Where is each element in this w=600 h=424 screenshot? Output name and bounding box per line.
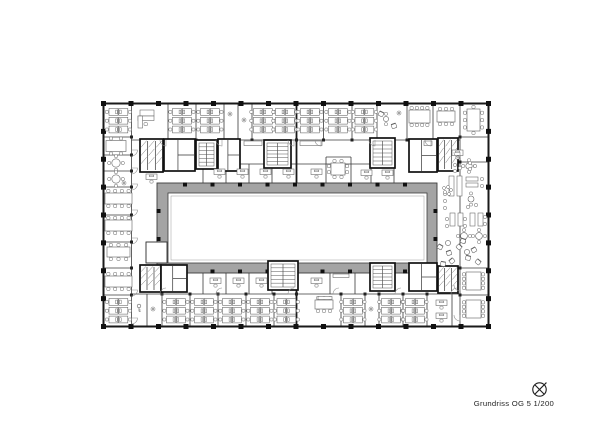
round-table — [472, 229, 487, 244]
lounge-chair — [437, 244, 443, 250]
meeting-table — [409, 107, 430, 127]
stool — [445, 224, 448, 227]
single-desk — [146, 174, 157, 183]
cabinet — [244, 141, 262, 146]
workstation-cluster — [340, 299, 366, 323]
stair-core — [268, 261, 298, 290]
lounge-counter — [466, 177, 478, 181]
lounge-chair — [449, 258, 456, 264]
lounge-chair — [378, 111, 384, 117]
lounge-chair — [471, 247, 477, 253]
lounge-counter — [458, 213, 463, 226]
wc-core — [140, 265, 161, 292]
service-core — [164, 139, 195, 171]
single-desk — [311, 278, 322, 287]
workstation-cluster — [105, 109, 131, 133]
wc-core — [438, 266, 458, 293]
stool — [445, 217, 448, 220]
lounge-counter — [457, 176, 462, 196]
lounge-chair — [456, 244, 463, 251]
round-table — [445, 240, 450, 245]
workstation-cluster — [197, 109, 223, 133]
plant-icon — [227, 111, 232, 116]
stool — [463, 217, 466, 220]
plant-icon — [368, 306, 373, 311]
lounge-chair — [460, 238, 466, 244]
lounge-counter — [478, 213, 483, 226]
single-desk — [256, 278, 267, 287]
service-core — [409, 139, 437, 172]
plant-icon — [150, 306, 155, 311]
stair-core — [196, 140, 217, 169]
meeting-table — [106, 137, 126, 155]
meeting-table — [105, 190, 132, 208]
lounge-chair — [465, 255, 471, 260]
plant-icon — [396, 110, 401, 115]
courtyard-atrium — [146, 183, 437, 273]
lounge-chair — [391, 123, 397, 129]
stair-core — [264, 140, 291, 168]
stool — [458, 166, 461, 169]
workstation-cluster — [219, 299, 245, 323]
lounge-chair — [475, 259, 482, 265]
round-table — [383, 112, 388, 125]
service-core — [409, 263, 437, 291]
workstation-cluster — [169, 109, 195, 133]
meeting-table — [105, 217, 132, 235]
single-desk — [237, 169, 248, 178]
workstation-cluster — [402, 299, 428, 323]
stool — [480, 184, 483, 187]
stair-core — [370, 138, 395, 168]
single-desk — [210, 278, 221, 287]
workstation-cluster — [273, 299, 299, 323]
stool — [466, 205, 469, 208]
meeting-table — [463, 106, 483, 135]
plant-icon — [121, 180, 126, 185]
stool — [473, 164, 476, 167]
wc-core — [140, 139, 163, 172]
single-desk — [311, 169, 322, 178]
stool — [483, 222, 486, 225]
single-desk — [361, 170, 372, 179]
door-swing — [132, 318, 138, 324]
stool — [468, 167, 471, 170]
workstation-cluster — [351, 109, 377, 133]
meeting-table — [327, 160, 348, 179]
stool — [468, 161, 471, 164]
round-table — [468, 192, 474, 206]
workstation-cluster — [272, 109, 298, 133]
cabinet — [318, 297, 332, 300]
lounge-chair — [446, 250, 452, 256]
key-icon — [137, 304, 141, 311]
plant-icon — [241, 117, 246, 122]
stool — [443, 199, 446, 202]
single-desk — [214, 169, 225, 178]
service-core — [218, 139, 240, 171]
workstation-cluster — [378, 299, 404, 323]
floor-plan-page: Grundriss OG 5 1/200 — [0, 0, 600, 424]
round-table — [464, 249, 469, 254]
single-desk — [382, 170, 393, 179]
stair-core — [370, 263, 395, 291]
lounge-chair — [440, 261, 445, 266]
workstation-cluster — [297, 109, 323, 133]
single-desk — [283, 169, 294, 178]
cabinet — [140, 110, 154, 116]
workstation-cluster — [191, 299, 217, 323]
stool — [463, 224, 466, 227]
workstation-cluster — [325, 109, 351, 133]
stool — [453, 163, 456, 166]
cabinet — [300, 141, 322, 146]
workstation-cluster — [163, 299, 189, 323]
lounge-counter — [466, 183, 478, 187]
meeting-table — [462, 300, 484, 318]
stool — [480, 177, 483, 180]
single-desk — [233, 278, 244, 287]
meeting-table — [462, 272, 484, 290]
single-desk — [436, 313, 447, 322]
lounge-counter — [450, 213, 455, 226]
meeting-table — [437, 108, 455, 126]
stool — [474, 203, 477, 206]
single-desk — [260, 169, 271, 178]
lounge-counter — [470, 213, 475, 226]
round-table — [108, 171, 125, 187]
cabinet — [333, 274, 349, 278]
l-desk — [138, 116, 154, 128]
stool — [443, 206, 446, 209]
workstation-cluster — [105, 299, 131, 323]
meeting-table — [105, 273, 132, 291]
floor-plan-drawing — [0, 0, 600, 424]
single-desk — [436, 300, 447, 309]
stool — [483, 215, 486, 218]
workstation-cluster — [247, 299, 273, 323]
door-swing — [454, 315, 460, 321]
round-table — [108, 155, 125, 171]
door-swing — [333, 288, 339, 294]
meeting-table — [107, 244, 130, 261]
door-swing — [395, 288, 401, 294]
stool — [453, 169, 456, 172]
